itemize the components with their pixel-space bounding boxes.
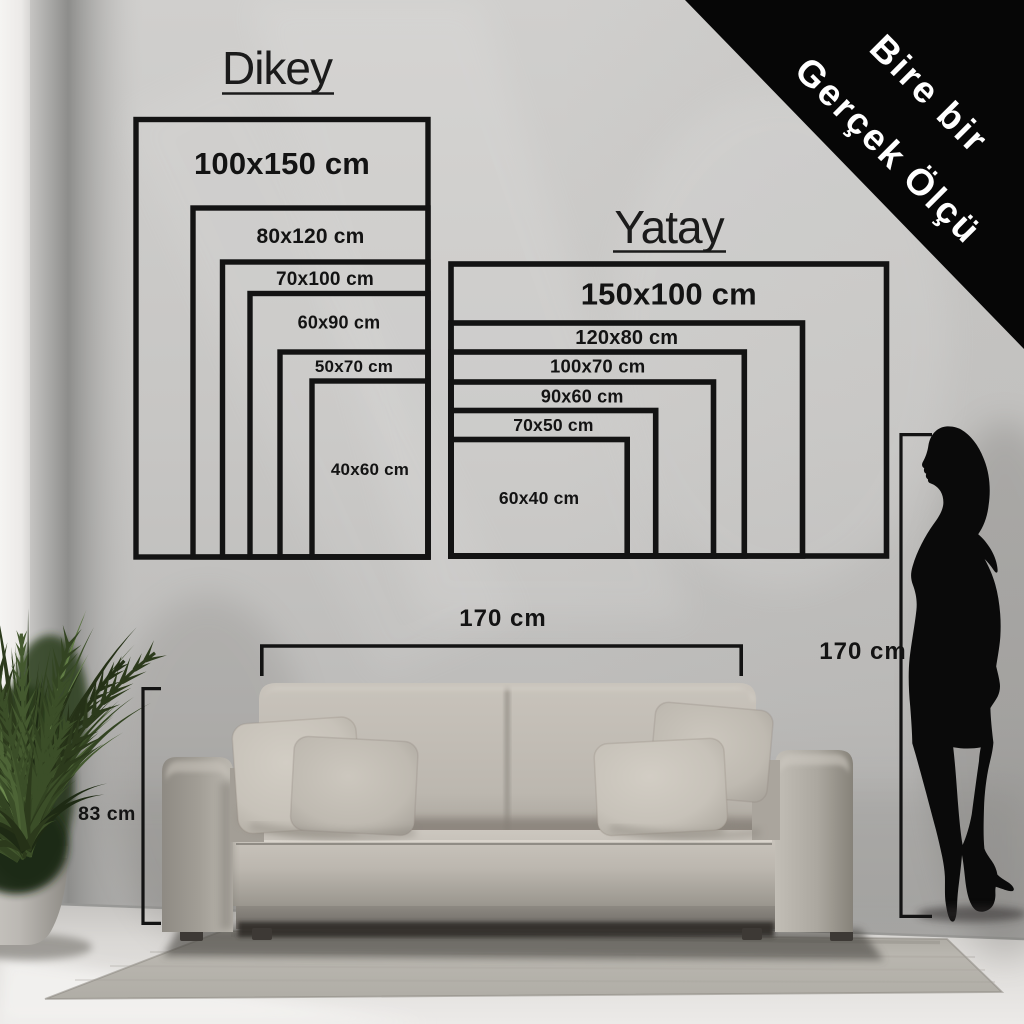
svg-text:100x70 cm: 100x70 cm <box>550 356 645 377</box>
svg-text:Yatay: Yatay <box>614 201 724 253</box>
svg-text:83 cm: 83 cm <box>78 803 136 825</box>
svg-text:60x40 cm: 60x40 cm <box>499 488 579 508</box>
svg-text:90x60 cm: 90x60 cm <box>541 387 624 407</box>
svg-text:40x60 cm: 40x60 cm <box>331 460 409 479</box>
svg-text:80x120 cm: 80x120 cm <box>256 225 364 248</box>
svg-text:70x50 cm: 70x50 cm <box>513 415 593 435</box>
svg-text:170 cm: 170 cm <box>459 605 546 632</box>
svg-text:120x80 cm: 120x80 cm <box>575 327 678 349</box>
svg-text:170 cm: 170 cm <box>819 638 906 665</box>
svg-text:60x90 cm: 60x90 cm <box>298 313 381 333</box>
svg-text:100x150 cm: 100x150 cm <box>194 146 370 181</box>
svg-text:Dikey: Dikey <box>222 42 333 94</box>
svg-text:50x70 cm: 50x70 cm <box>315 357 393 376</box>
svg-text:150x100 cm: 150x100 cm <box>581 277 757 312</box>
svg-text:70x100 cm: 70x100 cm <box>276 269 374 290</box>
